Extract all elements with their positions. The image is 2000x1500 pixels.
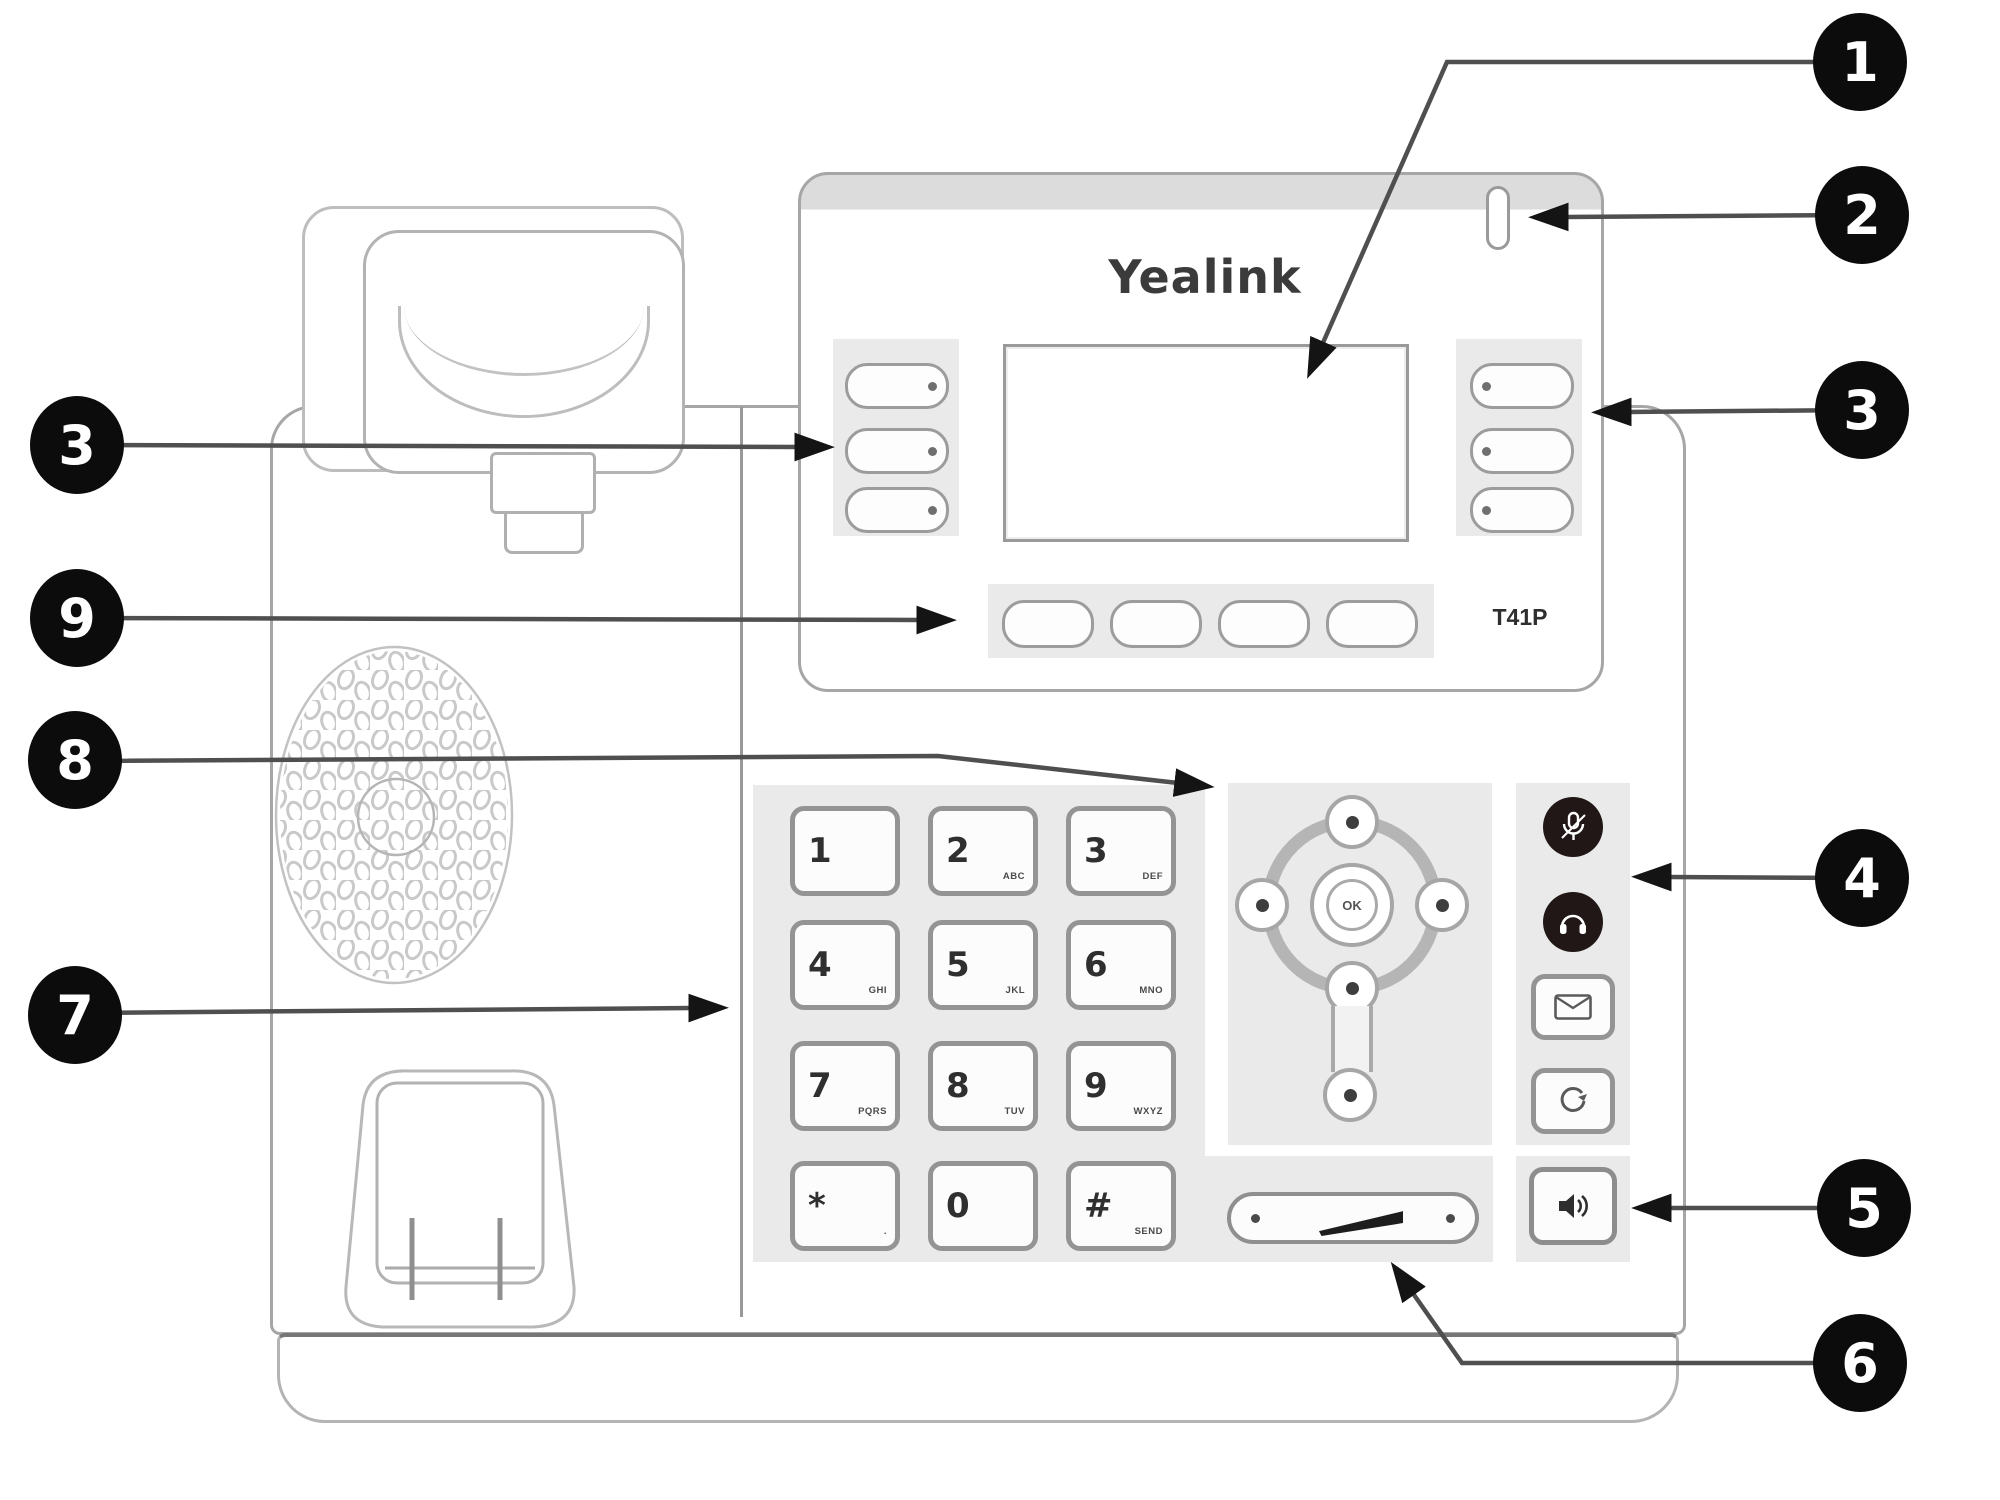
line-key[interactable] [845, 428, 949, 474]
speakerphone-key[interactable] [1529, 1167, 1617, 1245]
headset-key[interactable] [1543, 892, 1603, 952]
keypad-key-8[interactable]: 8TUV [928, 1041, 1038, 1131]
callout-7: 7 [28, 966, 122, 1064]
keypad-key-2[interactable]: 2ABC [928, 806, 1038, 896]
nav-up-icon [1346, 816, 1359, 829]
line-key-led [1482, 382, 1491, 391]
line-key[interactable] [1470, 487, 1574, 533]
keypad-key-3[interactable]: 3DEF [1066, 806, 1176, 896]
line-key-led [1482, 447, 1491, 456]
nav-up-key[interactable] [1325, 795, 1379, 849]
line-key[interactable] [1470, 363, 1574, 409]
line-key[interactable] [1470, 428, 1574, 474]
headset-icon [1557, 907, 1589, 937]
volume-key[interactable] [1227, 1192, 1479, 1244]
brand-logo: Yealink [1040, 250, 1370, 304]
callout-1: 1 [1813, 13, 1907, 111]
keypad-key-0[interactable]: 0 [928, 1161, 1038, 1251]
line-key[interactable] [845, 363, 949, 409]
nav-lower-icon [1344, 1089, 1357, 1102]
callout-3-right: 3 [1815, 361, 1909, 459]
callout-5: 5 [1817, 1159, 1911, 1257]
callout-3-left: 3 [30, 396, 124, 494]
redial-icon [1556, 1085, 1590, 1117]
keypad-key-star[interactable]: *. [790, 1161, 900, 1251]
nav-left-key[interactable] [1235, 878, 1289, 932]
callout-8: 8 [28, 711, 122, 809]
volume-wedge [1319, 1209, 1403, 1236]
keypad-key-6[interactable]: 6MNO [1066, 920, 1176, 1010]
soft-key[interactable] [1002, 600, 1094, 648]
keypad-key-1[interactable]: 1 [790, 806, 900, 896]
nav-trunk [1331, 1006, 1373, 1072]
speakerphone-icon [1556, 1189, 1590, 1223]
keypad-key-9[interactable]: 9WXYZ [1066, 1041, 1176, 1131]
nav-right-icon [1436, 899, 1449, 912]
line-key[interactable] [845, 487, 949, 533]
nav-down-icon [1346, 982, 1359, 995]
model-label: T41P [1462, 604, 1578, 636]
power-led-indicator [1486, 186, 1510, 250]
callout-2: 2 [1815, 166, 1909, 264]
line-key-led [928, 382, 937, 391]
keypad-panel: 1 2ABC 3DEF 4GHI 5JKL 6MNO 7PQRS 8TUV 9W… [753, 785, 1205, 1262]
volume-down-dot [1251, 1214, 1260, 1223]
keypad-key-4[interactable]: 4GHI [790, 920, 900, 1010]
soft-key[interactable] [1326, 600, 1418, 648]
ok-key[interactable]: OK [1326, 879, 1378, 931]
keypad-key-pound[interactable]: #SEND [1066, 1161, 1176, 1251]
soft-key[interactable] [1218, 600, 1310, 648]
mute-key[interactable] [1543, 797, 1603, 857]
mute-icon [1558, 811, 1588, 843]
phone-base-foot [277, 1333, 1679, 1423]
line-keys-right-panel [1456, 339, 1582, 536]
stand-hook-slot [333, 1063, 585, 1335]
nav-left-icon [1256, 899, 1269, 912]
callout-6: 6 [1813, 1314, 1907, 1412]
line-key-led [928, 506, 937, 515]
line-keys-left-panel [833, 339, 959, 536]
keypad-key-5[interactable]: 5JKL [928, 920, 1038, 1010]
nav-right-key[interactable] [1415, 878, 1469, 932]
hookswitch-clip[interactable] [490, 452, 596, 514]
message-key[interactable] [1531, 974, 1615, 1040]
body-divider-line [740, 407, 743, 1317]
line-key-led [1482, 506, 1491, 515]
volume-up-dot [1446, 1214, 1455, 1223]
callout-9: 9 [30, 569, 124, 667]
soft-key[interactable] [1110, 600, 1202, 648]
lcd-screen [1003, 344, 1409, 542]
callout-4: 4 [1815, 829, 1909, 927]
soft-keys-panel [988, 584, 1434, 658]
hookswitch-clip-tip [504, 514, 584, 554]
speaker-grille [268, 640, 520, 990]
message-icon [1554, 994, 1592, 1020]
keypad-key-7[interactable]: 7PQRS [790, 1041, 900, 1131]
redial-key[interactable] [1531, 1068, 1615, 1134]
line-key-led [928, 447, 937, 456]
nav-lower-key[interactable] [1323, 1068, 1377, 1122]
phone-callout-diagram: Yealink T41P 1 2ABC 3DEF 4GHI 5JKL 6MNO … [0, 0, 2000, 1500]
